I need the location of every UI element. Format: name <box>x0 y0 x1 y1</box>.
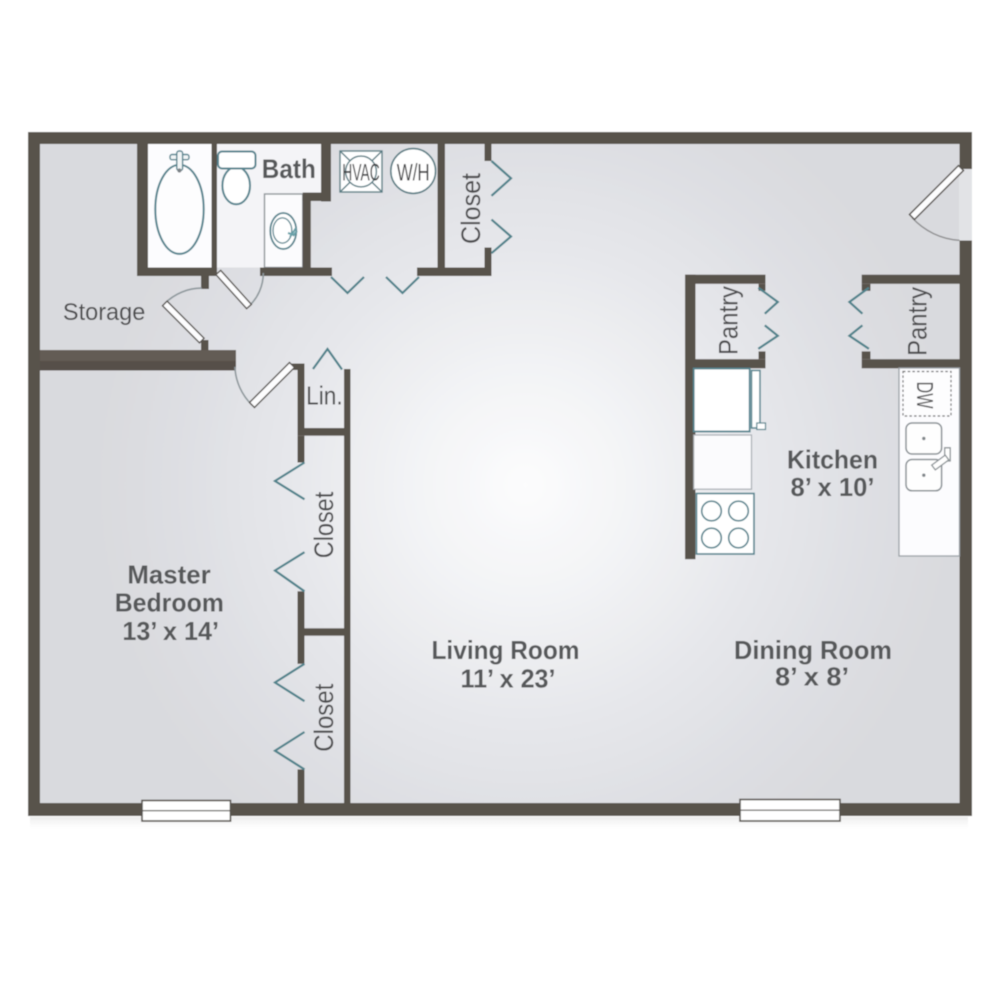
svg-text:Pantry: Pantry <box>714 286 744 355</box>
svg-text:8’ x 8’: 8’ x 8’ <box>775 662 849 692</box>
svg-text:HVAC: HVAC <box>342 160 380 187</box>
svg-text:Bedroom: Bedroom <box>115 588 224 618</box>
svg-text:Living Room: Living Room <box>432 635 580 665</box>
svg-text:13’ x 14’: 13’ x 14’ <box>122 616 219 646</box>
svg-text:Bath: Bath <box>262 154 316 184</box>
svg-text:Closet: Closet <box>309 491 339 558</box>
svg-text:8’ x 10’: 8’ x 10’ <box>791 472 875 502</box>
svg-text:Master: Master <box>127 560 210 590</box>
svg-text:Closet: Closet <box>309 683 339 751</box>
svg-text:Kitchen: Kitchen <box>787 445 878 475</box>
svg-text:W/H: W/H <box>397 160 430 187</box>
svg-text:Lin.: Lin. <box>306 381 343 411</box>
svg-text:Pantry: Pantry <box>903 286 933 355</box>
svg-text:11’ x 23’: 11’ x 23’ <box>461 663 556 693</box>
svg-text:DW: DW <box>912 382 938 409</box>
svg-text:Storage: Storage <box>63 299 145 326</box>
svg-text:Dining Room: Dining Room <box>734 635 892 665</box>
svg-text:Closet: Closet <box>456 173 486 244</box>
